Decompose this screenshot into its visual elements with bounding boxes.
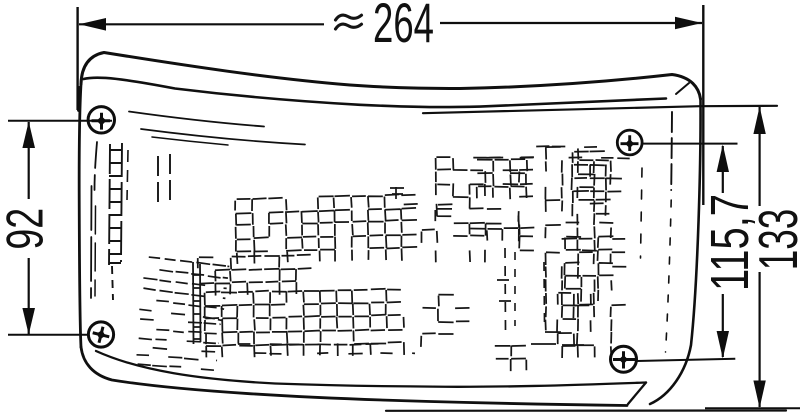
svg-text:92: 92 bbox=[0, 208, 54, 250]
svg-text:133: 133 bbox=[748, 209, 800, 270]
svg-text:264: 264 bbox=[373, 0, 434, 55]
